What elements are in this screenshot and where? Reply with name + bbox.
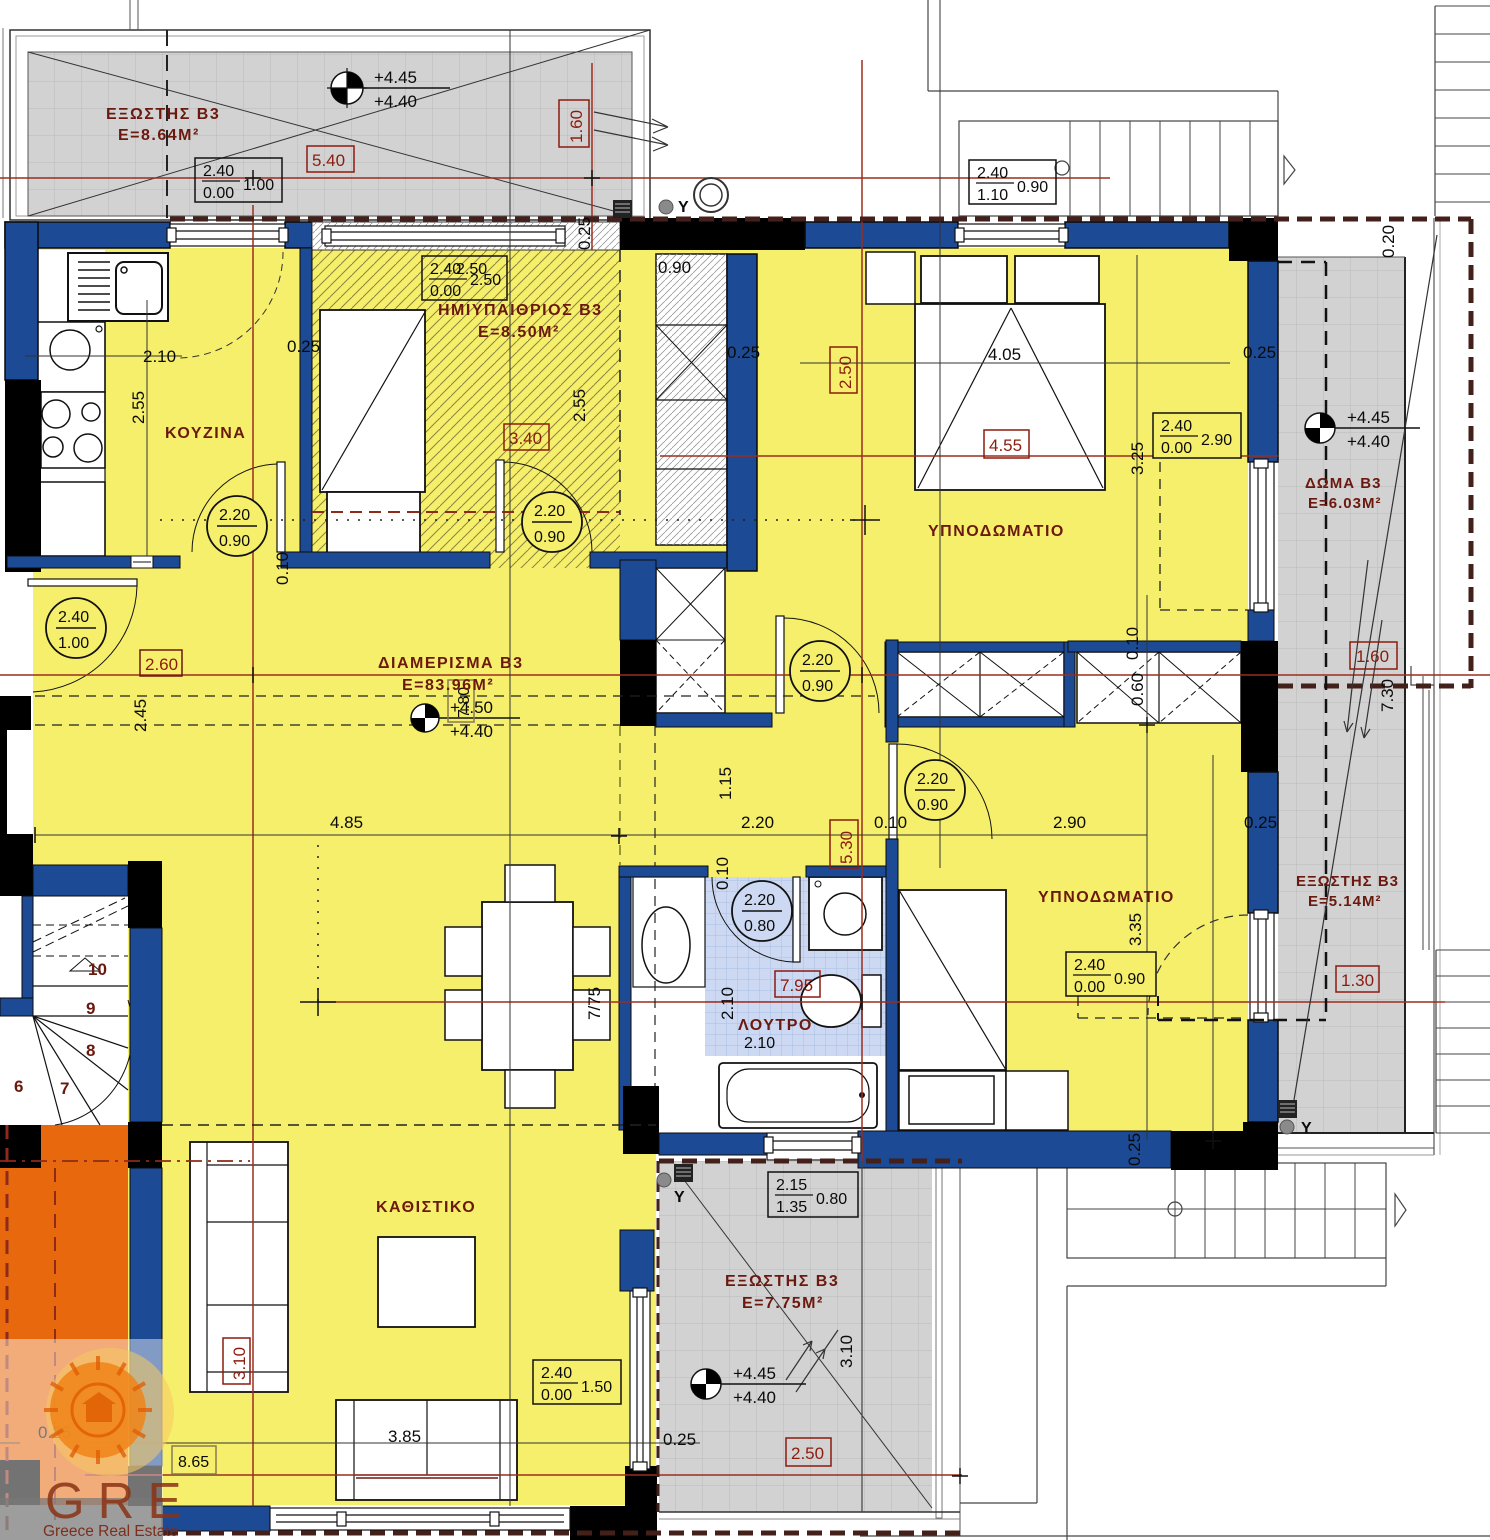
svg-text:4.85: 4.85	[330, 813, 363, 832]
svg-text:2.50: 2.50	[836, 356, 855, 389]
svg-text:Ε=83.96Μ²: Ε=83.96Μ²	[402, 677, 494, 694]
svg-text:2.40: 2.40	[1161, 418, 1192, 435]
svg-text:0.25: 0.25	[1125, 1133, 1144, 1166]
svg-text:10: 10	[88, 960, 107, 979]
svg-text:0.20: 0.20	[1379, 225, 1398, 258]
svg-text:1.30: 1.30	[1341, 971, 1374, 990]
svg-text:3.10: 3.10	[230, 1347, 249, 1380]
svg-text:0.10: 0.10	[713, 857, 732, 890]
svg-text:2.55: 2.55	[570, 389, 589, 422]
svg-text:1.35: 1.35	[776, 1199, 807, 1216]
svg-text:3.40: 3.40	[509, 429, 542, 448]
svg-text:6: 6	[14, 1077, 23, 1096]
svg-text:1.15: 1.15	[716, 767, 735, 800]
svg-text:2.40: 2.40	[203, 163, 234, 180]
svg-text:0.10: 0.10	[1123, 627, 1142, 660]
svg-text:2.40: 2.40	[541, 1365, 572, 1382]
svg-text:ΔΙΑΜΕΡΙΣΜΑ Β3: ΔΙΑΜΕΡΙΣΜΑ Β3	[378, 655, 524, 672]
svg-text:0.00: 0.00	[203, 185, 234, 202]
svg-text:1.00: 1.00	[243, 177, 274, 194]
svg-text:0.00: 0.00	[430, 283, 461, 300]
svg-text:1.60: 1.60	[1356, 647, 1389, 666]
svg-text:9: 9	[86, 999, 95, 1018]
svg-text:0.80: 0.80	[816, 1191, 847, 1208]
svg-text:4.55: 4.55	[989, 436, 1022, 455]
svg-text:ΛΟΥΤΡΟ: ΛΟΥΤΡΟ	[738, 1017, 813, 1034]
svg-text:0.80: 0.80	[744, 918, 775, 935]
svg-text:0.90: 0.90	[658, 258, 691, 277]
svg-text:+4.45: +4.45	[374, 68, 417, 87]
svg-text:4.05: 4.05	[988, 345, 1021, 364]
svg-text:7/75: 7/75	[585, 987, 604, 1020]
svg-text:0.25: 0.25	[663, 1430, 696, 1449]
svg-text:+4.40: +4.40	[1347, 432, 1390, 451]
svg-text:2.40: 2.40	[977, 165, 1008, 182]
svg-text:0.90: 0.90	[1017, 179, 1048, 196]
svg-text:ΔΩΜΑ Β3: ΔΩΜΑ Β3	[1305, 475, 1381, 492]
svg-text:Y: Y	[674, 1189, 685, 1206]
svg-text:0.25: 0.25	[1243, 343, 1276, 362]
svg-text:0.90: 0.90	[534, 529, 565, 546]
svg-text:2.45: 2.45	[131, 699, 150, 732]
svg-text:8: 8	[86, 1041, 95, 1060]
svg-text:1.00: 1.00	[58, 635, 89, 652]
svg-text:2.50: 2.50	[470, 272, 501, 289]
svg-text:2.90: 2.90	[1053, 813, 1086, 832]
svg-text:ΕΞΩΣΤΗΣ Β3: ΕΞΩΣΤΗΣ Β3	[725, 1273, 839, 1290]
svg-text:3.25: 3.25	[1128, 442, 1147, 475]
svg-text:0.90: 0.90	[219, 533, 250, 550]
svg-text:2.20: 2.20	[741, 813, 774, 832]
svg-text:0.25: 0.25	[727, 343, 760, 362]
svg-text:Ε=8.50Μ²: Ε=8.50Μ²	[478, 324, 560, 341]
svg-text:2.60: 2.60	[145, 655, 178, 674]
svg-text:0.60: 0.60	[1128, 673, 1147, 706]
svg-text:2.20: 2.20	[534, 503, 565, 520]
svg-text:2.10: 2.10	[143, 347, 176, 366]
svg-text:1.60: 1.60	[567, 110, 586, 143]
svg-text:2.20: 2.20	[917, 771, 948, 788]
svg-text:1.50: 1.50	[581, 1379, 612, 1396]
svg-text:0.00: 0.00	[1161, 440, 1192, 457]
svg-text:2.20: 2.20	[802, 652, 833, 669]
svg-text:1.10: 1.10	[977, 187, 1008, 204]
svg-text:+4.45: +4.45	[1347, 408, 1390, 427]
svg-text:Greece Real Estate: Greece Real Estate	[43, 1523, 178, 1540]
svg-text:0.00: 0.00	[1074, 979, 1105, 996]
svg-text:0.90: 0.90	[802, 678, 833, 695]
svg-text:ΗΜΙΥΠΑΙΘΡΙΟΣ Β3: ΗΜΙΥΠΑΙΘΡΙΟΣ Β3	[438, 302, 603, 319]
svg-text:2.10: 2.10	[744, 1035, 775, 1052]
svg-text:Ε=7.75Μ²: Ε=7.75Μ²	[742, 1295, 824, 1312]
svg-text:Ε=5.14Μ²: Ε=5.14Μ²	[1308, 893, 1381, 910]
svg-text:0.90: 0.90	[1114, 971, 1145, 988]
svg-text:2.15: 2.15	[776, 1177, 807, 1194]
svg-text:2.90: 2.90	[1201, 432, 1232, 449]
svg-text:ΚΟΥΖΙΝΑ: ΚΟΥΖΙΝΑ	[165, 425, 246, 442]
svg-text:GRE: GRE	[45, 1472, 195, 1529]
svg-text:7: 7	[60, 1079, 69, 1098]
svg-text:2.50: 2.50	[791, 1444, 824, 1463]
svg-text:ΥΠΝΟΔΩΜΑΤΙΟ: ΥΠΝΟΔΩΜΑΤΙΟ	[928, 523, 1065, 540]
svg-text:Ε=8.64Μ²: Ε=8.64Μ²	[118, 127, 200, 144]
svg-text:2.10: 2.10	[718, 987, 737, 1020]
svg-text:ΕΞΩΣΤΗΣ Β3: ΕΞΩΣΤΗΣ Β3	[106, 106, 220, 123]
svg-text:0.25: 0.25	[1244, 813, 1277, 832]
svg-text:3.85: 3.85	[388, 1427, 421, 1446]
svg-text:0.10: 0.10	[273, 552, 292, 585]
svg-text:ΚΑΘΙΣΤΙΚΟ: ΚΑΘΙΣΤΙΚΟ	[376, 1199, 476, 1216]
svg-text:0.90: 0.90	[917, 797, 948, 814]
svg-text:ΥΠΝΟΔΩΜΑΤΙΟ: ΥΠΝΟΔΩΜΑΤΙΟ	[1038, 889, 1175, 906]
svg-text:7.95: 7.95	[780, 976, 813, 995]
svg-text:0.00: 0.00	[541, 1387, 572, 1404]
svg-text:0.25: 0.25	[575, 217, 594, 250]
svg-text:Ε=6.03Μ²: Ε=6.03Μ²	[1308, 495, 1381, 512]
svg-text:ΕΞΩΣΤΗΣ Β3: ΕΞΩΣΤΗΣ Β3	[1296, 873, 1399, 890]
svg-text:7.30: 7.30	[1378, 679, 1397, 712]
svg-text:2.40: 2.40	[58, 609, 89, 626]
svg-text:2.20: 2.20	[219, 507, 250, 524]
svg-text:2.55: 2.55	[129, 391, 148, 424]
svg-text:+4.40: +4.40	[374, 92, 417, 111]
svg-text:3.35: 3.35	[1126, 913, 1145, 946]
svg-text:+4.40: +4.40	[733, 1388, 776, 1407]
svg-text:8.65: 8.65	[178, 1454, 209, 1471]
svg-text:2.40: 2.40	[1074, 957, 1105, 974]
svg-text:5.40: 5.40	[312, 151, 345, 170]
svg-text:2.20: 2.20	[744, 892, 775, 909]
svg-text:+4.45: +4.45	[733, 1364, 776, 1383]
svg-text:0.25: 0.25	[287, 337, 320, 356]
svg-text:0.10: 0.10	[874, 813, 907, 832]
svg-text:Y: Y	[678, 199, 689, 216]
svg-text:+4.40: +4.40	[450, 722, 493, 741]
svg-text:5.30: 5.30	[837, 831, 856, 864]
svg-text:3.10: 3.10	[837, 1335, 856, 1368]
svg-text:Y: Y	[1301, 1120, 1312, 1137]
